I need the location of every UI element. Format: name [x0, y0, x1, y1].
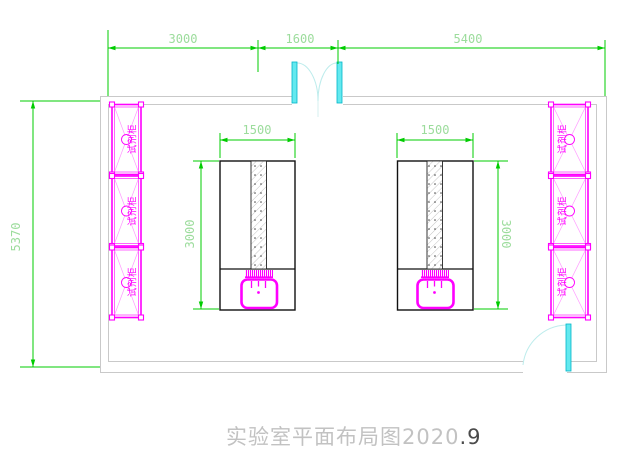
reagent-cabinet-right-3: [549, 245, 591, 320]
dim-left-table-height-label: 3000: [184, 220, 196, 249]
reagent-shelf-strip: [251, 161, 267, 269]
bottom-door-opening: [523, 356, 567, 377]
room-walls: [101, 97, 607, 373]
cabinet-right-1-label: 试剂柜: [558, 124, 568, 154]
cabinet-left-2-label: 试剂柜: [128, 196, 138, 226]
dim-room-height-label: 5370: [10, 223, 22, 252]
cabinet-left-3-label: 试剂柜: [128, 267, 138, 297]
floor-plan-drawing: [0, 0, 619, 469]
dim-left-table-width-label: 1500: [243, 124, 272, 136]
drawing-title-text: 实验室平面布局图2020: [226, 425, 459, 449]
cabinet-left-1-label: 试剂柜: [128, 124, 138, 154]
reagent-cabinet-right-1: [549, 102, 591, 177]
reagent-cabinet-right-2: [549, 174, 591, 249]
cabinet-right-2-label: 试剂柜: [558, 196, 568, 226]
door-leaf-left: [292, 62, 297, 103]
cabinet-right-3-label: 试剂柜: [558, 267, 568, 297]
dim-top-segment2-label: 1600: [286, 33, 315, 45]
dim-right-table-height-label: 3000: [500, 220, 512, 249]
drawing-title: 实验室平面布局图2020.9: [226, 421, 482, 451]
floor-plan-canvas: 3000 1600 5400 5370 1500 3000 1500 3000 …: [0, 0, 619, 469]
dim-right-table-width-label: 1500: [421, 124, 450, 136]
door-leaf-right: [337, 62, 342, 103]
dim-top-segment1-label: 3000: [169, 33, 198, 45]
lab-table-left: [220, 161, 295, 310]
dim-room-height: [20, 101, 100, 367]
dim-top-segment3-label: 5400: [454, 33, 483, 45]
reagent-shelf-strip: [427, 161, 443, 269]
lab-table-right: [398, 161, 474, 310]
drawing-title-suffix: .9: [459, 425, 481, 449]
door-leaf: [566, 324, 571, 371]
